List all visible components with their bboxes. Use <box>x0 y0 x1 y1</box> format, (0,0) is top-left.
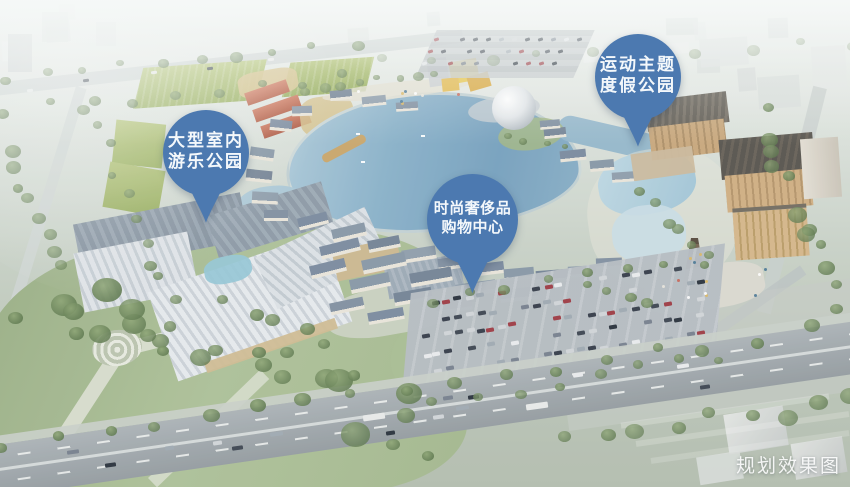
callout-text-line: 时尚奢侈品 <box>434 201 512 216</box>
callout-text-line: 游乐公园 <box>168 153 244 170</box>
callout-label: 时尚奢侈品 购物中心 <box>427 174 518 262</box>
callout-text-line: 购物中心 <box>441 220 503 235</box>
callout-text-line: 运动主题 <box>600 56 676 73</box>
callout-sports-theme-resort: 运动主题 度假公园 <box>595 34 681 149</box>
callout-label: 大型室内 游乐公园 <box>163 110 249 193</box>
callout-luxury-shopping-center: 时尚奢侈品 购物中心 <box>427 174 518 296</box>
watermark: 规划效果图 <box>736 451 841 478</box>
callout-text-line: 度假公园 <box>600 77 676 94</box>
callout-text-line: 大型室内 <box>168 132 244 149</box>
planning-rendering: 大型室内 游乐公园 运动主题 度假公园 时尚奢侈品 购物中心 规划效果图 <box>0 0 850 487</box>
atmosphere-veil <box>0 0 850 487</box>
callout-label: 运动主题 度假公园 <box>595 34 681 117</box>
callout-indoor-amusement-park: 大型室内 游乐公园 <box>163 110 249 225</box>
aerial-scene <box>0 0 850 487</box>
